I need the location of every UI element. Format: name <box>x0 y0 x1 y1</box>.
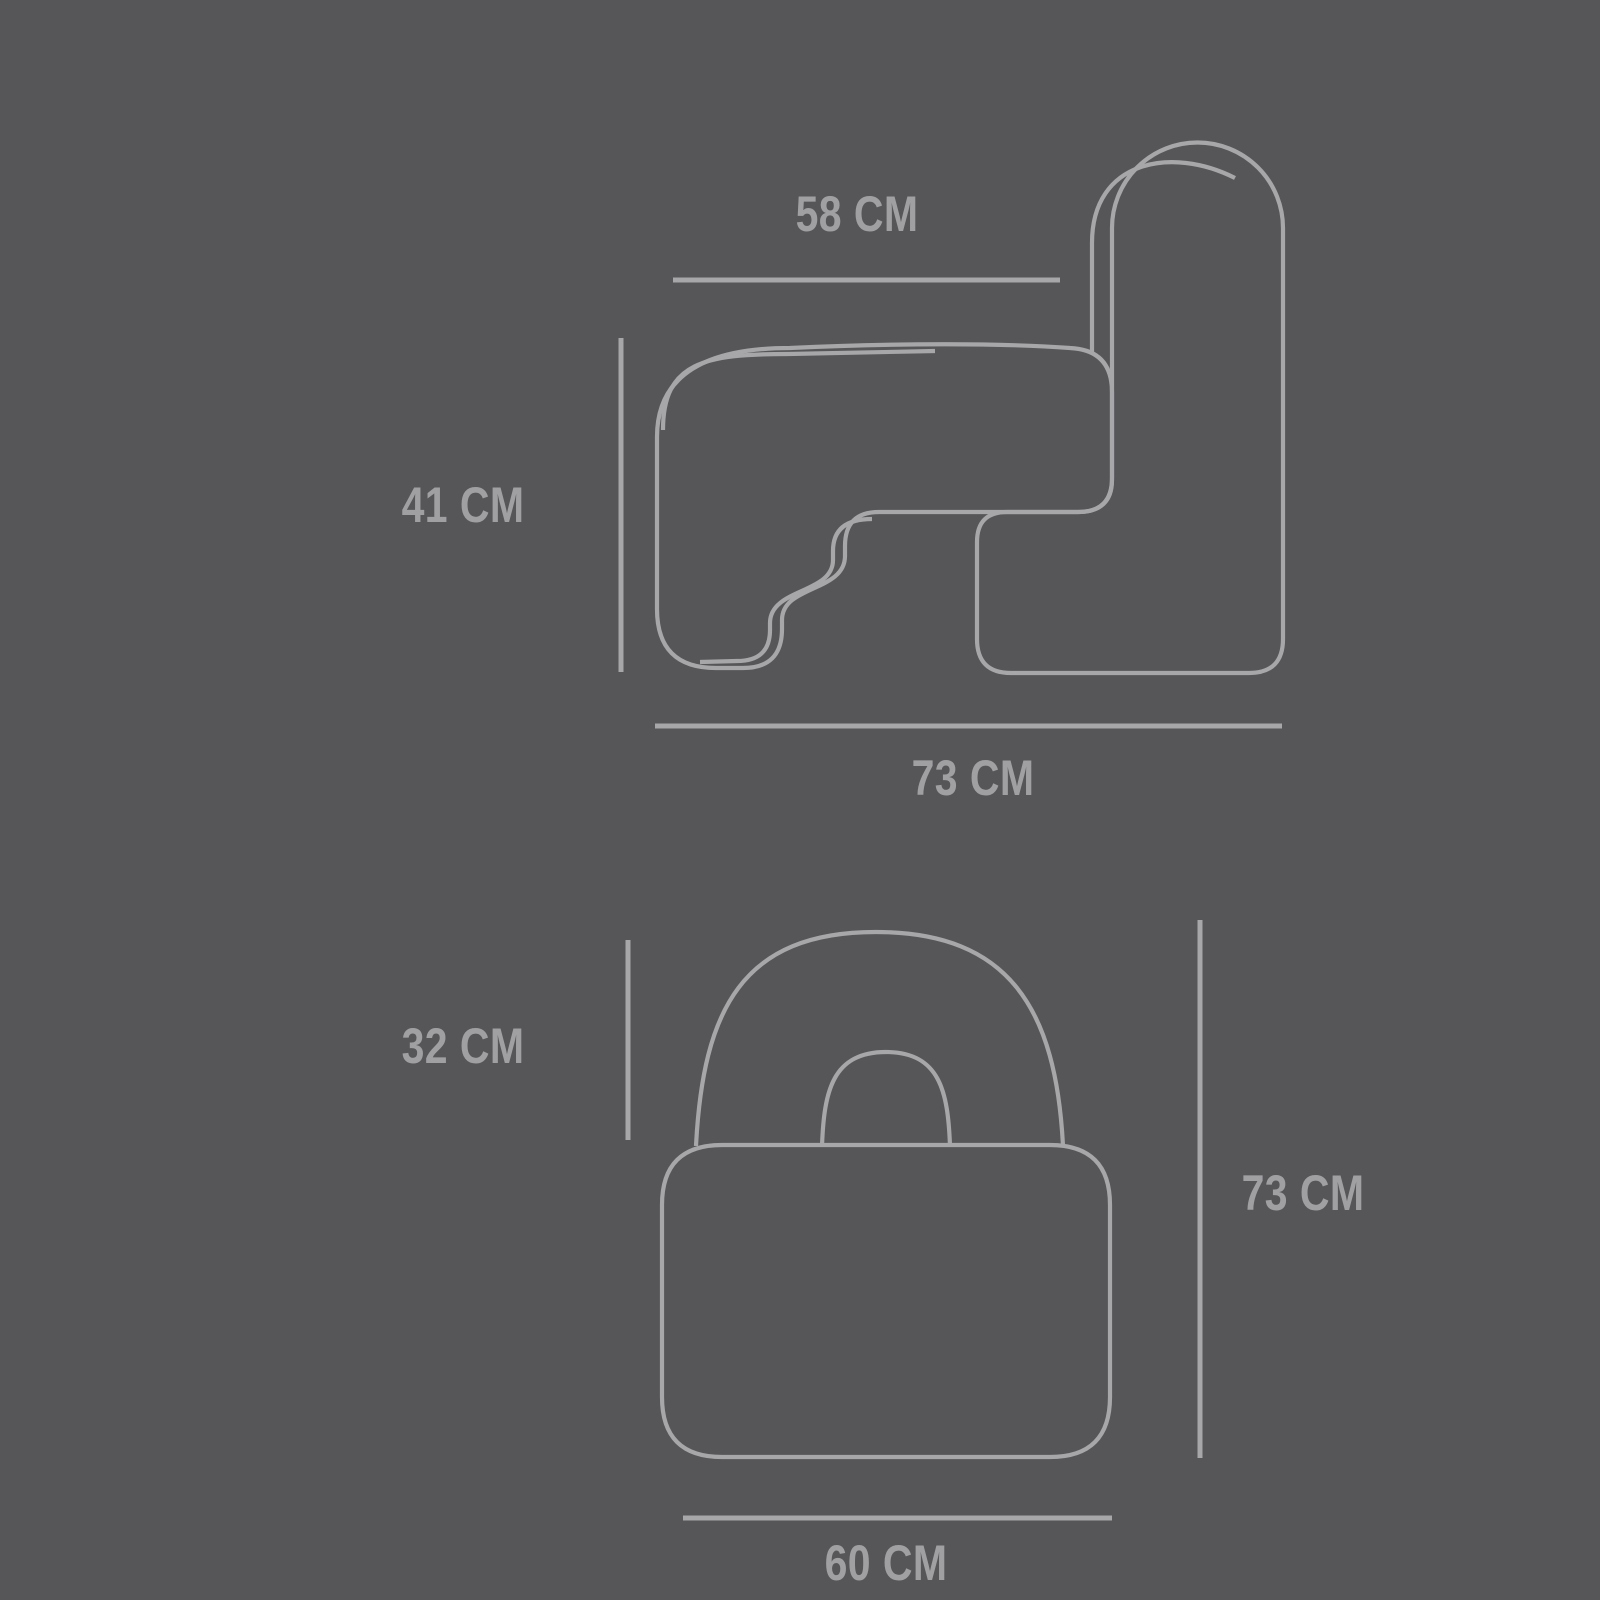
dim-label-total-height: 73 CM <box>1242 1164 1365 1222</box>
side-view-seat-top-seam-line <box>663 351 935 430</box>
side-view-seat-outline <box>657 344 1112 668</box>
dim-label-seat-width: 60 CM <box>825 1534 948 1592</box>
diagram-canvas: 58 CM 41 CM 73 CM 32 CM 73 CM 60 CM <box>0 0 1600 1600</box>
dim-label-seat-height: 41 CM <box>402 476 525 534</box>
side-view-back-outline <box>977 143 1283 674</box>
dim-label-total-depth: 73 CM <box>912 749 1035 807</box>
dim-label-seat-top-width: 58 CM <box>796 185 919 243</box>
front-view-seat-outline <box>662 1145 1110 1457</box>
front-view-headrest-outline <box>822 1052 950 1146</box>
dim-label-backrest-height: 32 CM <box>402 1017 525 1075</box>
front-view-backrest-outline <box>696 932 1063 1146</box>
